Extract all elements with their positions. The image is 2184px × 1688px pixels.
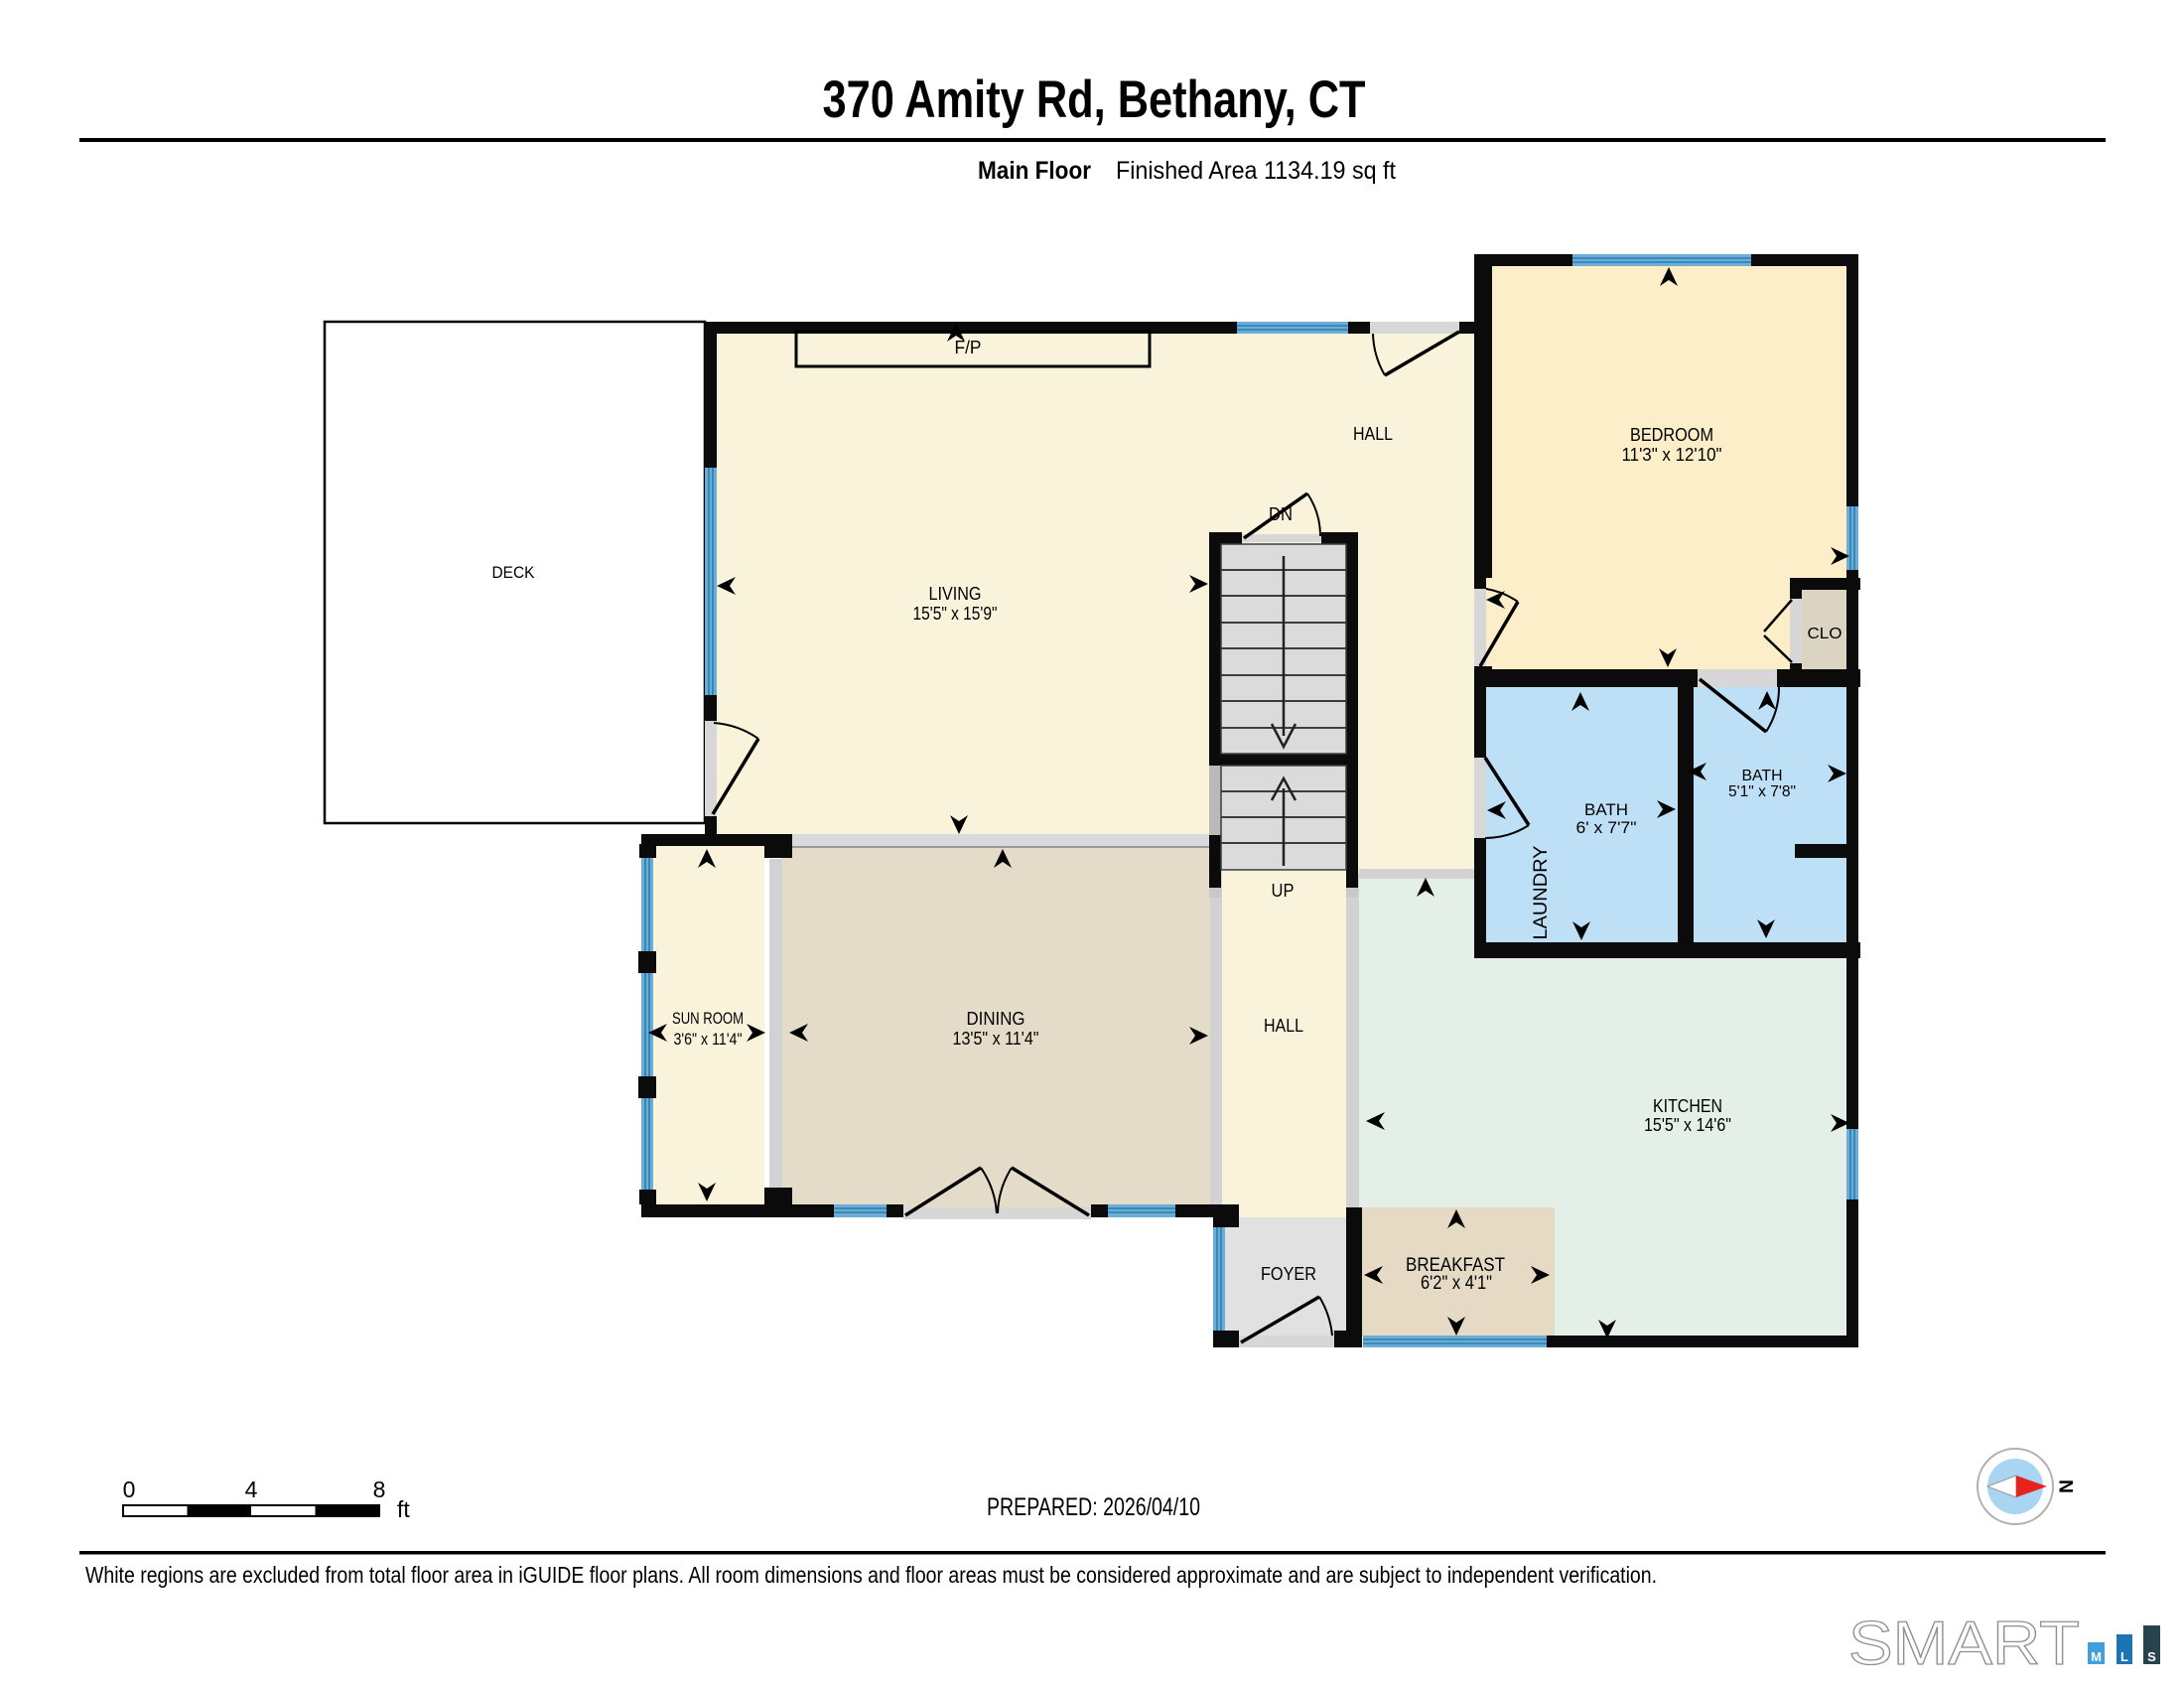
svg-text:M: M: [2091, 1649, 2102, 1664]
svg-text:6' x 7'7": 6' x 7'7": [1576, 818, 1637, 837]
svg-text:15'5" x 15'9": 15'5" x 15'9": [913, 604, 998, 624]
svg-text:BATH: BATH: [1584, 800, 1628, 819]
svg-text:13'5" x 11'4": 13'5" x 11'4": [953, 1029, 1039, 1049]
svg-text:3'6" x 11'4": 3'6" x 11'4": [674, 1031, 743, 1049]
svg-text:DINING: DINING: [967, 1009, 1025, 1029]
svg-text:S: S: [2147, 1649, 2156, 1664]
svg-text:15'5" x 14'6": 15'5" x 14'6": [1644, 1114, 1731, 1135]
svg-text:ft: ft: [397, 1496, 410, 1522]
svg-text:N: N: [2055, 1479, 2076, 1493]
svg-text:SUN ROOM: SUN ROOM: [672, 1010, 744, 1028]
svg-text:8: 8: [373, 1477, 386, 1502]
svg-text:11'3" x 12'10": 11'3" x 12'10": [1622, 444, 1722, 465]
svg-text:F/P: F/P: [955, 338, 982, 357]
svg-text:PREPARED: 2026/04/10: PREPARED: 2026/04/10: [987, 1493, 1200, 1521]
svg-text:KITCHEN: KITCHEN: [1653, 1095, 1722, 1116]
svg-text:LAUNDRY: LAUNDRY: [1531, 845, 1552, 939]
svg-text:6'2" x 4'1": 6'2" x 4'1": [1421, 1273, 1492, 1294]
svg-text:White regions are excluded fro: White regions are excluded from total fl…: [85, 1562, 1657, 1588]
svg-text:FOYER: FOYER: [1261, 1264, 1316, 1284]
svg-text:DN: DN: [1269, 504, 1293, 524]
svg-text:HALL: HALL: [1264, 1016, 1303, 1036]
svg-text:UP: UP: [1272, 881, 1295, 901]
svg-text:LIVING: LIVING: [929, 584, 982, 604]
svg-text:SMART: SMART: [1848, 1610, 2080, 1678]
svg-text:5'1" x 7'8": 5'1" x 7'8": [1728, 783, 1796, 800]
svg-text:0: 0: [123, 1477, 136, 1502]
svg-text:4: 4: [245, 1477, 258, 1502]
svg-text:370 Amity Rd, Bethany, CT: 370 Amity Rd, Bethany, CT: [823, 70, 1366, 129]
svg-text:Main Floor: Main Floor: [978, 157, 1091, 185]
svg-text:BATH: BATH: [1742, 768, 1783, 784]
svg-text:Finished Area 1134.19 sq ft: Finished Area 1134.19 sq ft: [1116, 157, 1396, 185]
svg-text:CLO: CLO: [1808, 626, 1843, 642]
svg-text:DECK: DECK: [492, 563, 536, 582]
svg-text:BEDROOM: BEDROOM: [1630, 424, 1713, 445]
svg-text:HALL: HALL: [1353, 424, 1393, 444]
svg-text:L: L: [2120, 1649, 2128, 1664]
